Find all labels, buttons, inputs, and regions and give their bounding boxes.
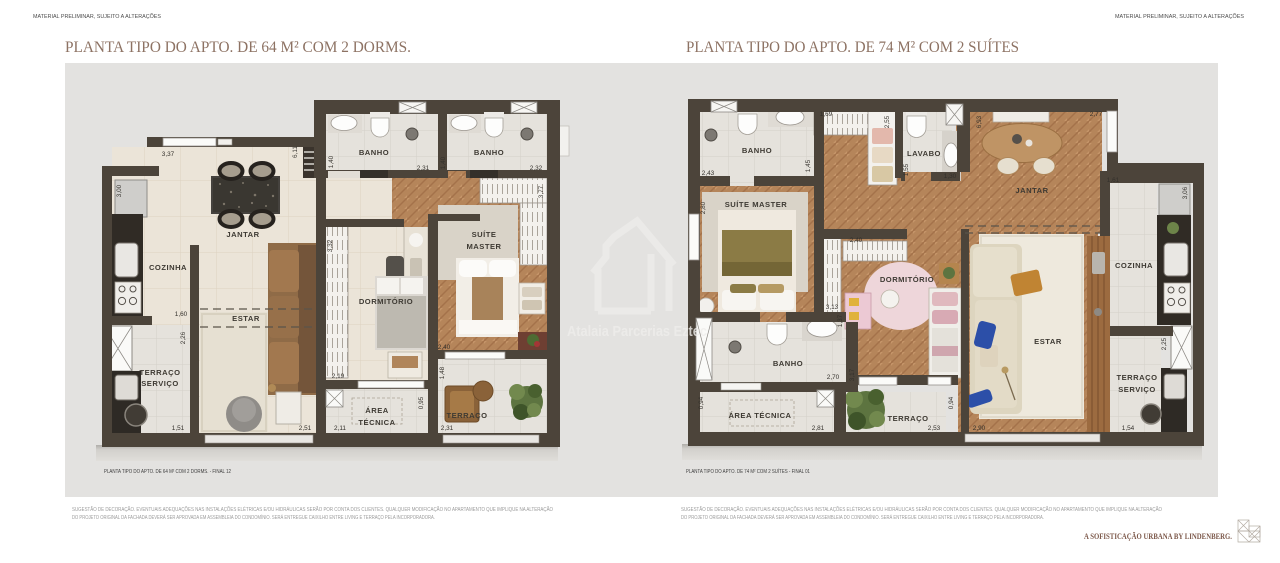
- svg-text:2,31: 2,31: [441, 425, 454, 432]
- svg-text:0,94: 0,94: [698, 396, 705, 409]
- svg-text:2,53: 2,53: [928, 425, 941, 432]
- svg-text:3,06: 3,06: [1182, 186, 1189, 199]
- svg-text:2,31: 2,31: [417, 165, 430, 172]
- svg-text:TERRAÇO: TERRAÇO: [446, 411, 487, 420]
- svg-text:2,70: 2,70: [827, 374, 840, 381]
- svg-text:1,54: 1,54: [1122, 425, 1135, 432]
- svg-text:0,94: 0,94: [948, 396, 955, 409]
- svg-text:BANHO: BANHO: [474, 148, 504, 157]
- svg-text:1,45: 1,45: [805, 159, 812, 172]
- svg-text:MASTER: MASTER: [466, 242, 501, 251]
- svg-text:3,00: 3,00: [116, 184, 123, 197]
- svg-text:2,19: 2,19: [332, 373, 345, 380]
- svg-text:2,40: 2,40: [438, 344, 451, 351]
- svg-text:ESTAR: ESTAR: [1034, 337, 1062, 346]
- svg-text:2,80: 2,80: [700, 201, 707, 214]
- svg-text:3,13: 3,13: [826, 304, 839, 311]
- svg-text:PLANTA TIPO DO APTO. DE 64 M²: PLANTA TIPO DO APTO. DE 64 M² COM 2 DORM…: [104, 469, 231, 475]
- svg-text:1,40: 1,40: [440, 156, 447, 169]
- svg-text:1,30: 1,30: [944, 173, 957, 180]
- svg-text:MATERIAL PRELIMINAR, SUJEITO A: MATERIAL PRELIMINAR, SUJEITO A ALTERAÇÕE…: [1115, 13, 1244, 20]
- svg-text:SUGESTÃO DE DECORAÇÃO. EVENTUA: SUGESTÃO DE DECORAÇÃO. EVENTUAIS ADEQUAÇ…: [681, 506, 1162, 513]
- svg-text:6,93: 6,93: [976, 115, 983, 128]
- svg-text:3,17: 3,17: [849, 368, 856, 381]
- svg-text:SUÍTE MASTER: SUÍTE MASTER: [725, 200, 788, 209]
- svg-text:2,43: 2,43: [702, 170, 715, 177]
- svg-text:TERRAÇO: TERRAÇO: [887, 414, 928, 423]
- svg-text:3,77: 3,77: [538, 185, 545, 198]
- svg-text:2,40: 2,40: [850, 237, 863, 244]
- svg-text:ÁREA: ÁREA: [365, 406, 389, 415]
- svg-text:ESTAR: ESTAR: [232, 314, 260, 323]
- svg-text:1,51: 1,51: [172, 425, 185, 432]
- svg-text:1,40: 1,40: [328, 155, 335, 168]
- svg-text:BANHO: BANHO: [742, 146, 772, 155]
- svg-text:2,51: 2,51: [299, 425, 312, 432]
- svg-text:PLANTA TIPO DO APTO. DE 74 M²: PLANTA TIPO DO APTO. DE 74 M² COM 2 SUÍT…: [686, 468, 810, 475]
- svg-text:2,90: 2,90: [973, 425, 986, 432]
- svg-text:TÉCNICA: TÉCNICA: [358, 418, 395, 427]
- svg-text:BANHO: BANHO: [359, 148, 389, 157]
- svg-text:1,69: 1,69: [820, 111, 833, 118]
- svg-text:JANTAR: JANTAR: [226, 230, 259, 239]
- svg-text:1,61: 1,61: [1107, 177, 1120, 184]
- svg-text:DO PROJETO ORIGINAL DA FACHADA: DO PROJETO ORIGINAL DA FACHADA DEVERÁ SE…: [72, 514, 435, 521]
- svg-text:A SOFISTICAÇÃO URBANA BY LINDE: A SOFISTICAÇÃO URBANA BY LINDENBERG.: [1084, 531, 1232, 541]
- svg-text:1,55: 1,55: [903, 163, 910, 176]
- svg-text:1,60: 1,60: [175, 311, 188, 318]
- svg-text:2,11: 2,11: [334, 425, 346, 432]
- svg-text:2,81: 2,81: [812, 425, 825, 432]
- svg-text:2,55: 2,55: [884, 115, 891, 128]
- svg-text:3,32: 3,32: [327, 239, 334, 252]
- svg-text:PLANTA TIPO DO APTO. DE 74 M²: PLANTA TIPO DO APTO. DE 74 M² COM 2 SUÍT…: [686, 37, 1019, 56]
- svg-text:BANHO: BANHO: [773, 359, 803, 368]
- svg-text:MATERIAL PRELIMINAR, SUJEITO A: MATERIAL PRELIMINAR, SUJEITO A ALTERAÇÕE…: [33, 13, 161, 20]
- svg-text:3,37: 3,37: [162, 151, 175, 158]
- svg-text:COZINHA: COZINHA: [149, 263, 187, 272]
- svg-text:TERRAÇO: TERRAÇO: [1116, 373, 1157, 382]
- svg-text:ÁREA TÉCNICA: ÁREA TÉCNICA: [728, 411, 791, 420]
- svg-text:SUGESTÃO DE DECORAÇÃO. EVENTUA: SUGESTÃO DE DECORAÇÃO. EVENTUAIS ADEQUAÇ…: [72, 506, 553, 513]
- svg-text:COZINHA: COZINHA: [1115, 261, 1153, 270]
- svg-text:DORMITÓRIO: DORMITÓRIO: [359, 297, 413, 306]
- svg-text:SUÍTE: SUÍTE: [472, 230, 497, 239]
- svg-text:Atalaia Parcerias Eztec: Atalaia Parcerias Eztec: [567, 323, 707, 340]
- svg-text:2,25: 2,25: [1161, 337, 1168, 350]
- svg-text:SERVIÇO: SERVIÇO: [141, 379, 179, 388]
- svg-text:JANTAR: JANTAR: [1015, 186, 1048, 195]
- svg-text:0,95: 0,95: [418, 396, 425, 409]
- svg-text:1,37: 1,37: [837, 314, 844, 327]
- svg-text:2,77: 2,77: [1090, 111, 1103, 118]
- svg-text:DORMITÓRIO: DORMITÓRIO: [880, 275, 934, 284]
- svg-text:DO PROJETO ORIGINAL DA FACHADA: DO PROJETO ORIGINAL DA FACHADA DEVERÁ SE…: [681, 514, 1044, 521]
- svg-text:1,48: 1,48: [439, 366, 446, 379]
- svg-text:PLANTA TIPO DO APTO. DE 64 M²: PLANTA TIPO DO APTO. DE 64 M² COM 2 DORM…: [65, 39, 411, 56]
- svg-text:6,11: 6,11: [292, 146, 299, 158]
- svg-text:TERRAÇO: TERRAÇO: [139, 368, 180, 377]
- svg-text:2,26: 2,26: [180, 331, 187, 344]
- svg-text:LAVABO: LAVABO: [907, 149, 941, 158]
- svg-text:2,32: 2,32: [530, 165, 543, 172]
- svg-text:SERVIÇO: SERVIÇO: [1118, 385, 1156, 394]
